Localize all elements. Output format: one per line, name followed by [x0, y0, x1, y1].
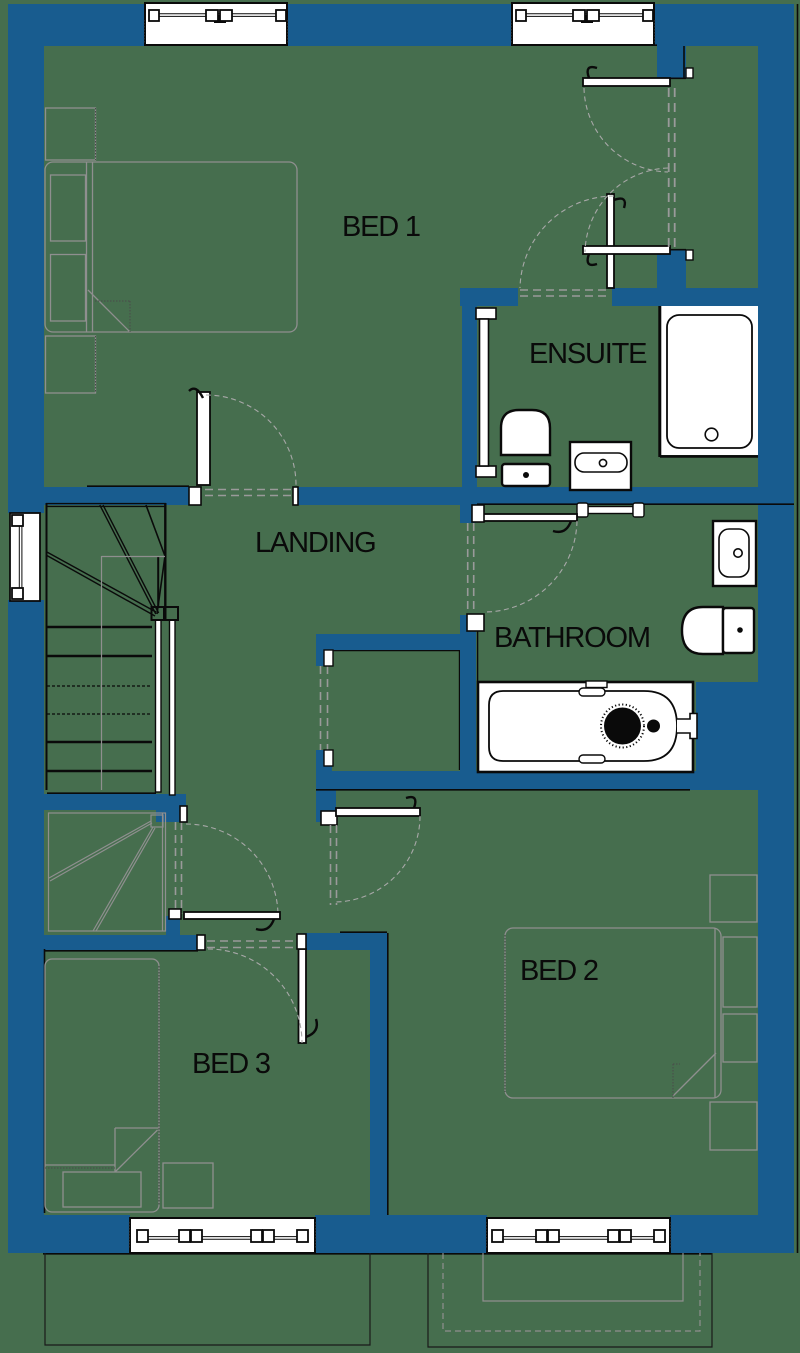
svg-text:BED 2: BED 2 [520, 955, 598, 987]
svg-text:BED 3: BED 3 [192, 1048, 270, 1080]
svg-text:BATHROOM: BATHROOM [494, 622, 650, 654]
svg-text:BED 1: BED 1 [342, 211, 420, 243]
svg-text:LANDING: LANDING [255, 527, 376, 559]
svg-text:ENSUITE: ENSUITE [529, 338, 647, 370]
